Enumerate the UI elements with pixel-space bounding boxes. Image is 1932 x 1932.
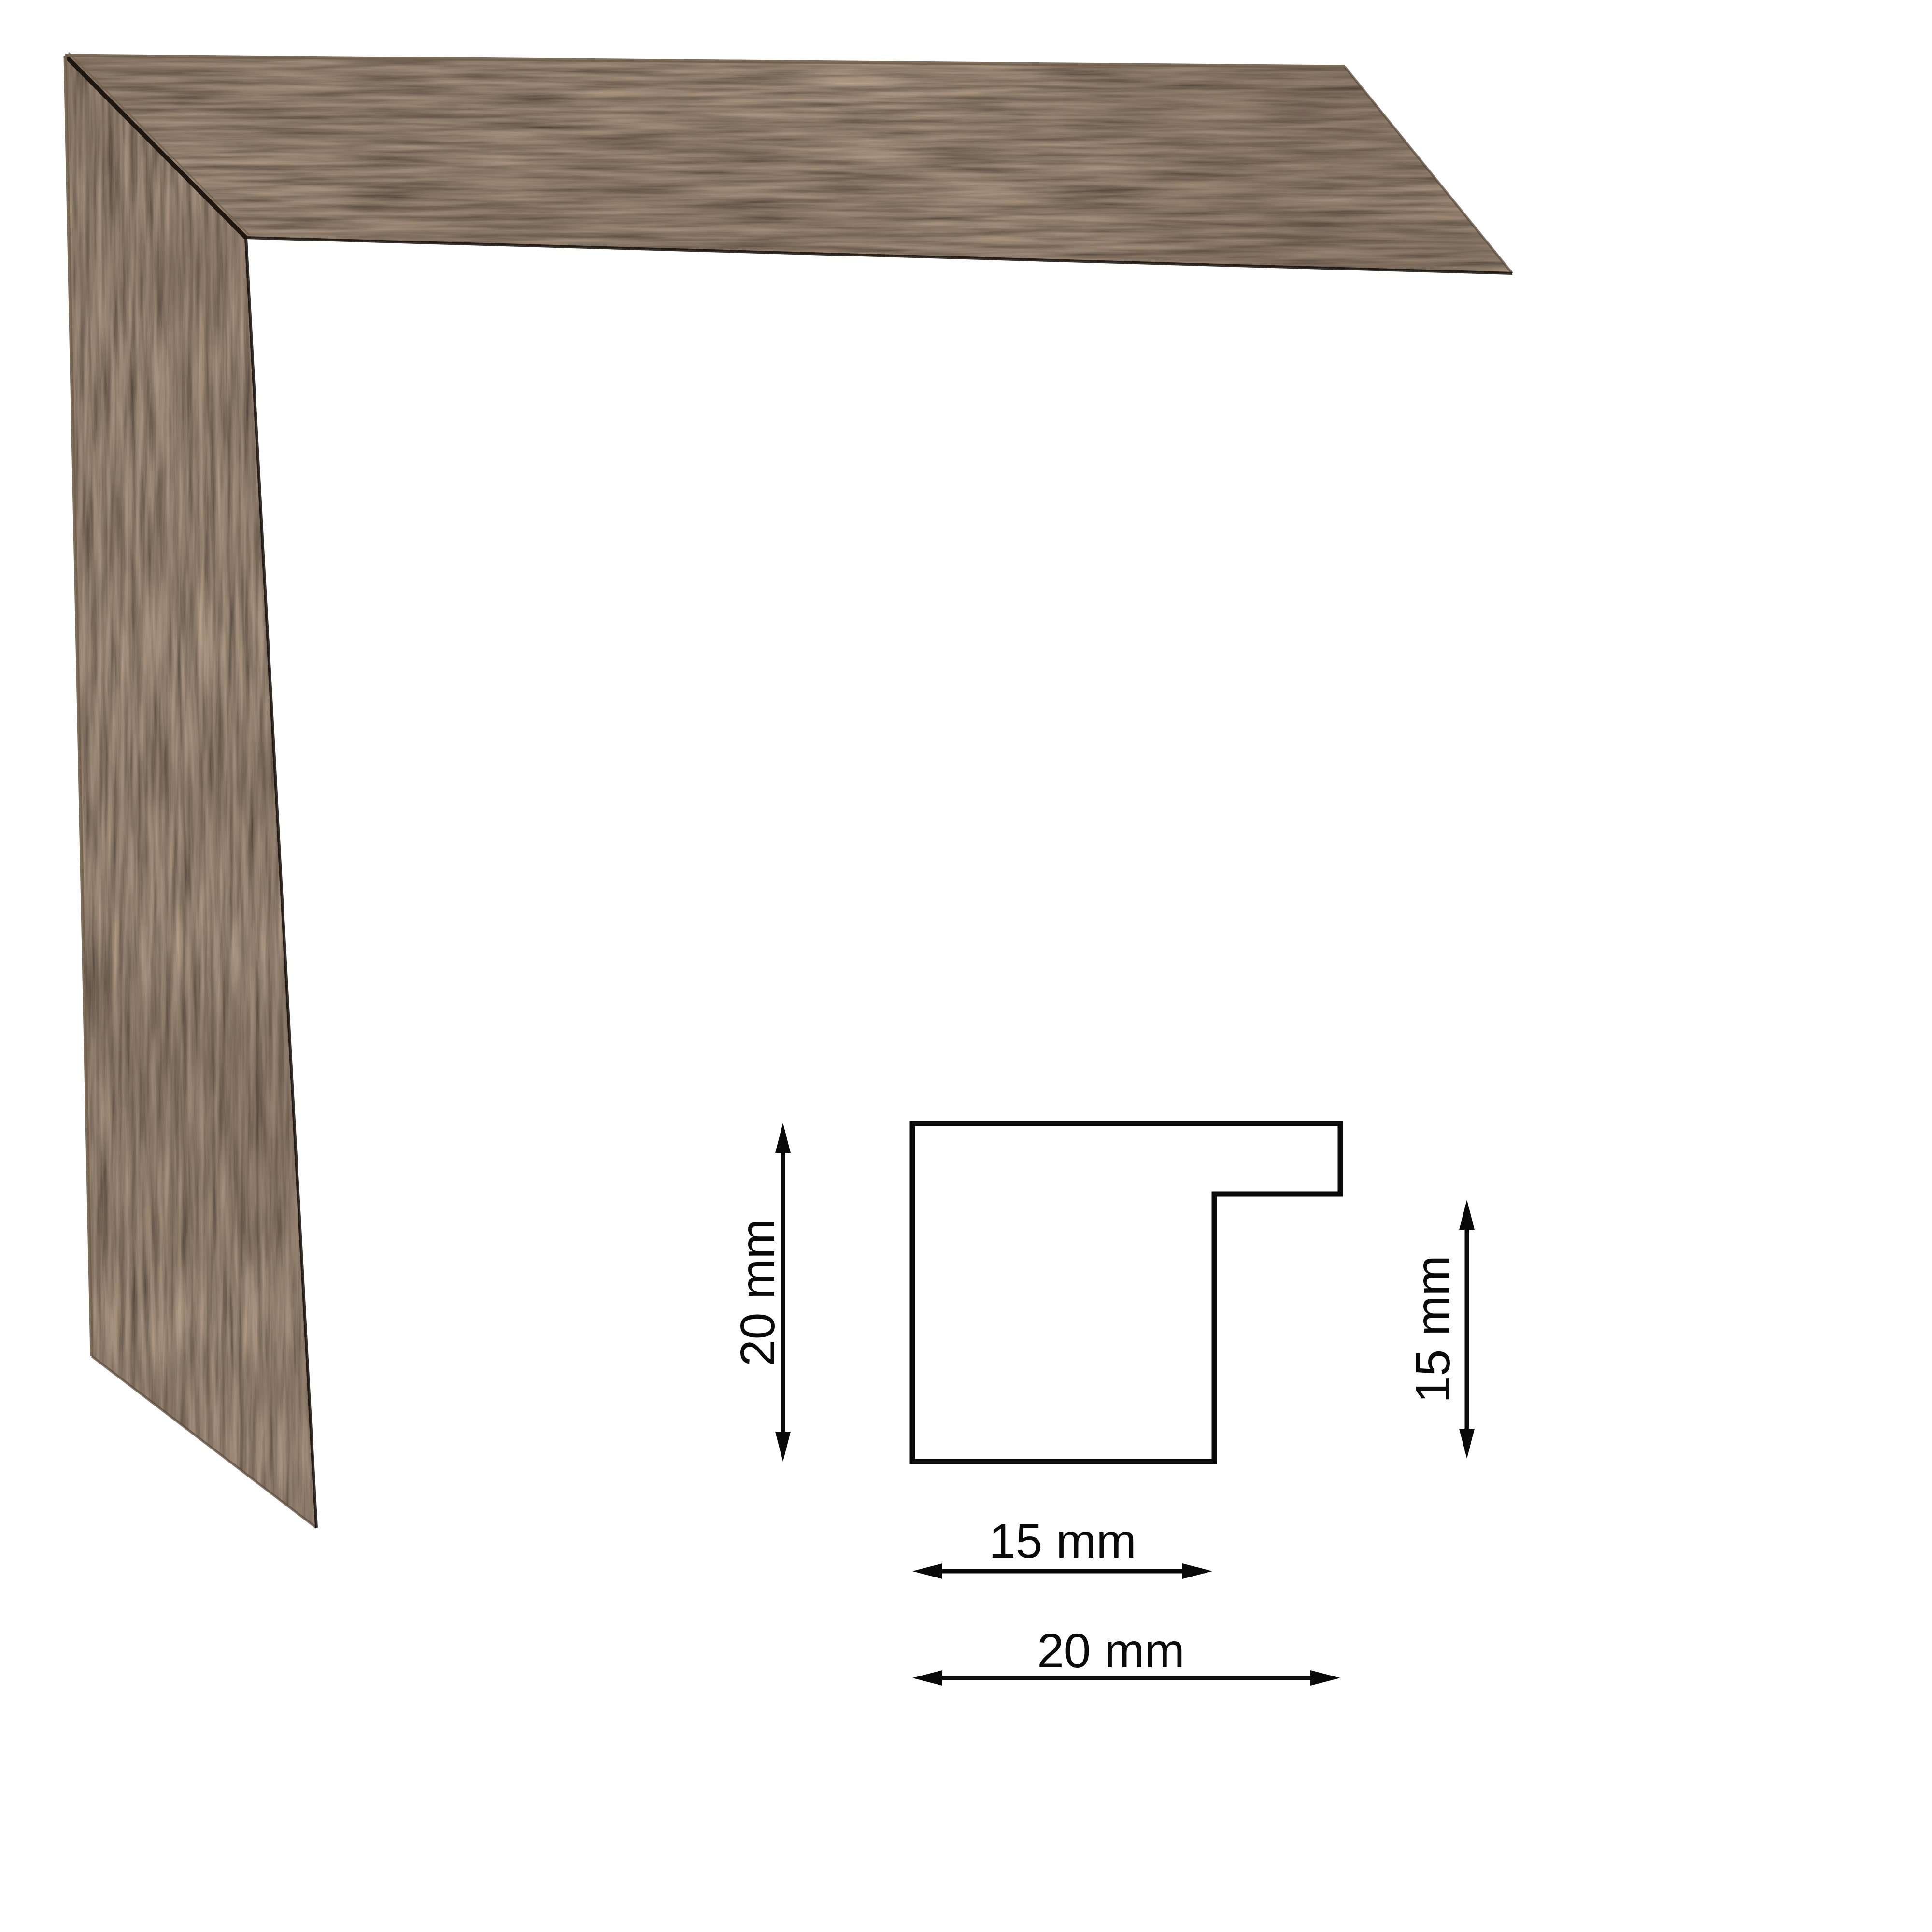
arrow-right-icon <box>1310 1670 1340 1686</box>
arrow-left-icon <box>912 1670 942 1686</box>
dim-label-width-outer: 20 mm <box>1037 1624 1185 1678</box>
frame-corner-sample <box>48 39 1546 1550</box>
dim-label-width-inner: 15 mm <box>989 1514 1136 1568</box>
frame-top-rail-shading <box>48 39 1546 299</box>
frame-top-rail <box>48 39 1546 299</box>
dimension-height-right <box>1459 1200 1475 1459</box>
arrow-down-icon <box>1459 1429 1475 1459</box>
arrow-up-icon <box>775 1123 791 1153</box>
arrow-left-icon <box>912 1563 942 1579</box>
profile-cross-section-diagram <box>775 1123 1475 1686</box>
profile-outline <box>912 1123 1340 1462</box>
arrow-up-icon <box>1459 1200 1475 1230</box>
arrow-right-icon <box>1182 1563 1212 1579</box>
profile-dimension-labels: 20 mm 15 mm 15 mm 20 mm <box>731 1219 1460 1678</box>
product-image: 20 mm 15 mm 15 mm 20 mm <box>0 0 1932 1932</box>
dim-label-height-right: 15 mm <box>1406 1255 1460 1403</box>
dim-label-height-left: 20 mm <box>731 1219 785 1366</box>
arrow-down-icon <box>775 1432 791 1462</box>
